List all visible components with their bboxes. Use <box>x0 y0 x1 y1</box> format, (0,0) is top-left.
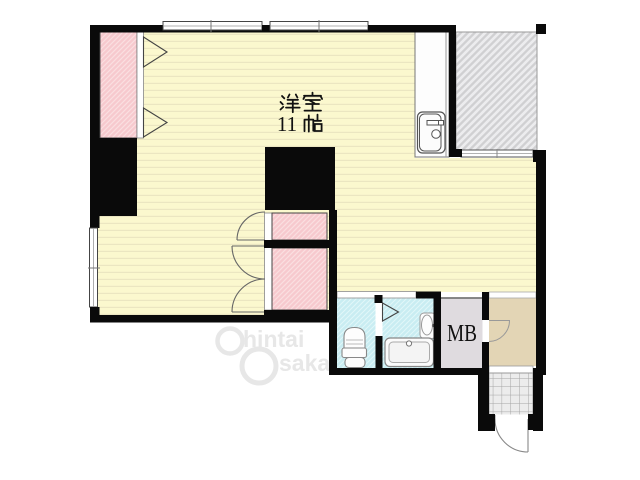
svg-text:hintai: hintai <box>243 326 304 352</box>
svg-text:saka: saka <box>279 350 330 376</box>
svg-text:11: 11 <box>277 112 297 136</box>
svg-text:MB: MB <box>447 321 477 347</box>
